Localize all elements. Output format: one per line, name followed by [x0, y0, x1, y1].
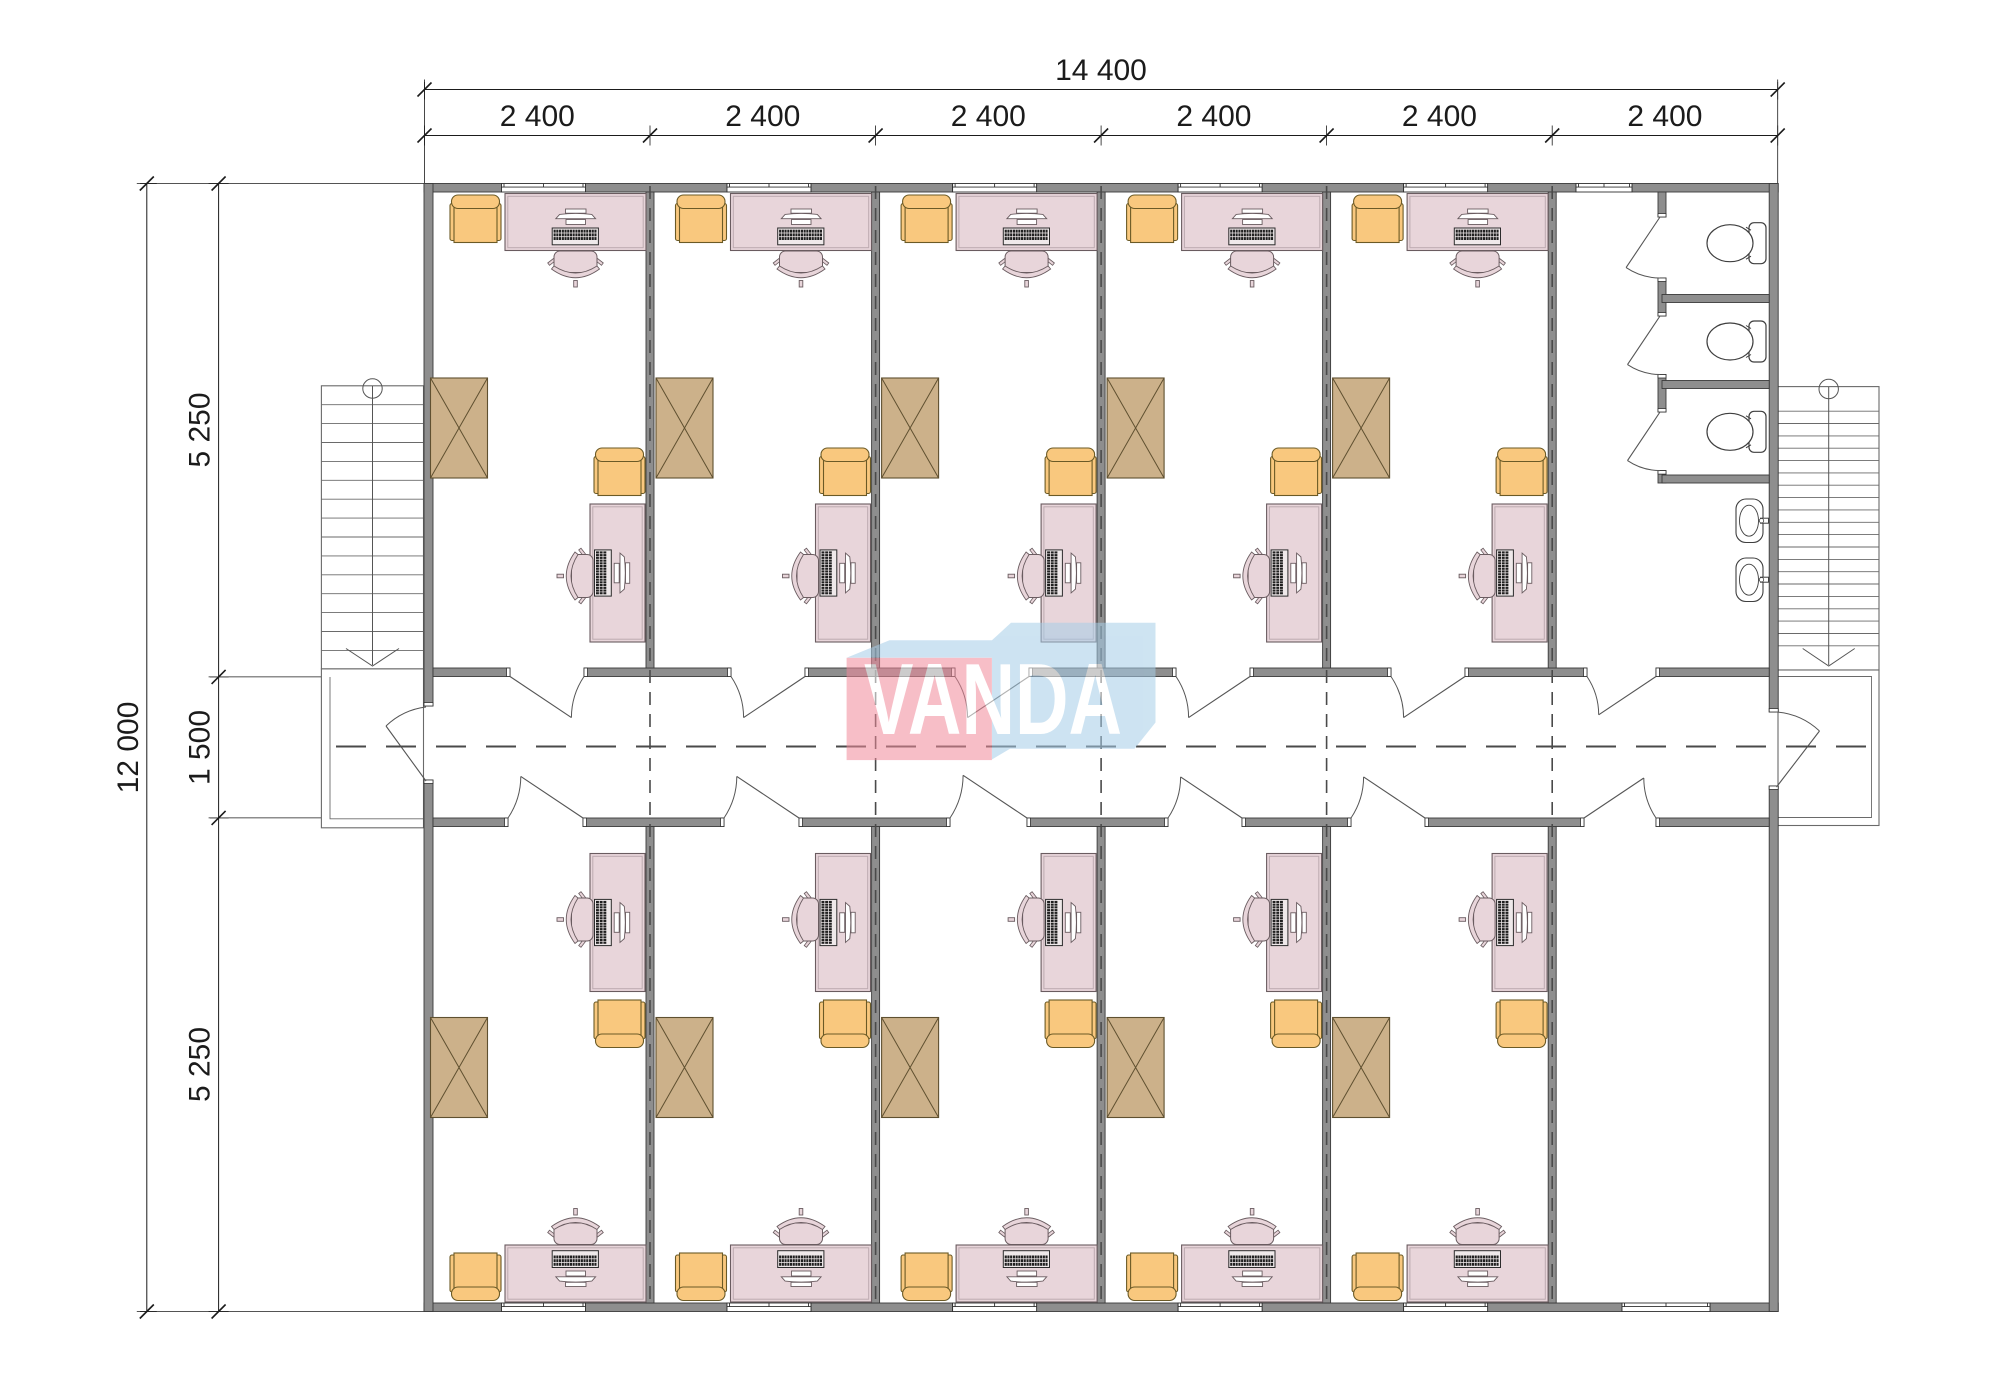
svg-text:2 400: 2 400: [951, 100, 1026, 133]
svg-text:14 400: 14 400: [1055, 54, 1147, 87]
svg-text:2 400: 2 400: [1627, 100, 1702, 133]
svg-text:5 250: 5 250: [184, 392, 217, 467]
svg-text:5 250: 5 250: [184, 1027, 217, 1102]
svg-text:VANDA: VANDA: [864, 644, 1122, 756]
svg-text:1 500: 1 500: [184, 710, 217, 785]
svg-text:2 400: 2 400: [1402, 100, 1477, 133]
svg-text:2 400: 2 400: [725, 100, 800, 133]
svg-text:2 400: 2 400: [1176, 100, 1251, 133]
svg-text:12 000: 12 000: [112, 702, 145, 794]
svg-text:2 400: 2 400: [500, 100, 575, 133]
